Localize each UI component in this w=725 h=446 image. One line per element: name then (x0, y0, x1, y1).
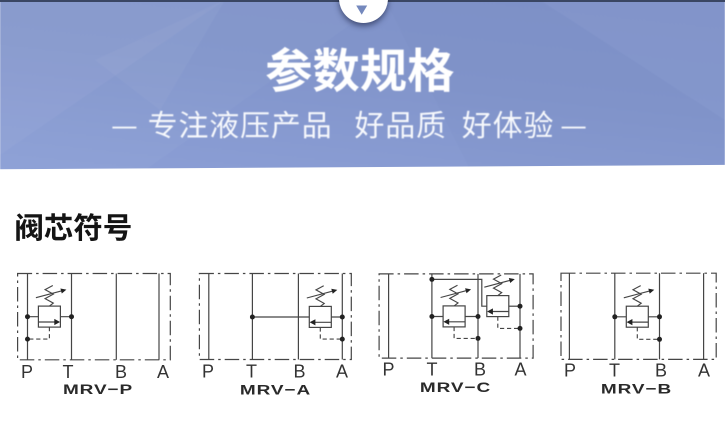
svg-text:MRV−P: MRV−P (63, 381, 133, 397)
svg-text:A: A (157, 362, 169, 382)
svg-text:A: A (336, 362, 348, 382)
svg-text:B: B (474, 359, 486, 379)
svg-text:P: P (382, 359, 394, 379)
svg-text:B: B (655, 360, 667, 380)
svg-text:T: T (63, 362, 74, 382)
svg-text:MRV−C: MRV−C (420, 379, 491, 395)
svg-text:T: T (427, 359, 438, 379)
svg-text:T: T (246, 362, 257, 382)
svg-text:T: T (609, 360, 620, 380)
svg-text:MRV−A: MRV−A (240, 382, 311, 398)
svg-text:B: B (115, 362, 127, 382)
svg-text:A: A (514, 359, 526, 379)
svg-text:B: B (293, 362, 305, 382)
svg-text:A: A (698, 360, 710, 380)
svg-text:P: P (21, 362, 33, 382)
svg-text:P: P (564, 360, 576, 380)
svg-text:MRV−B: MRV−B (601, 381, 672, 397)
svg-text:P: P (202, 362, 214, 382)
